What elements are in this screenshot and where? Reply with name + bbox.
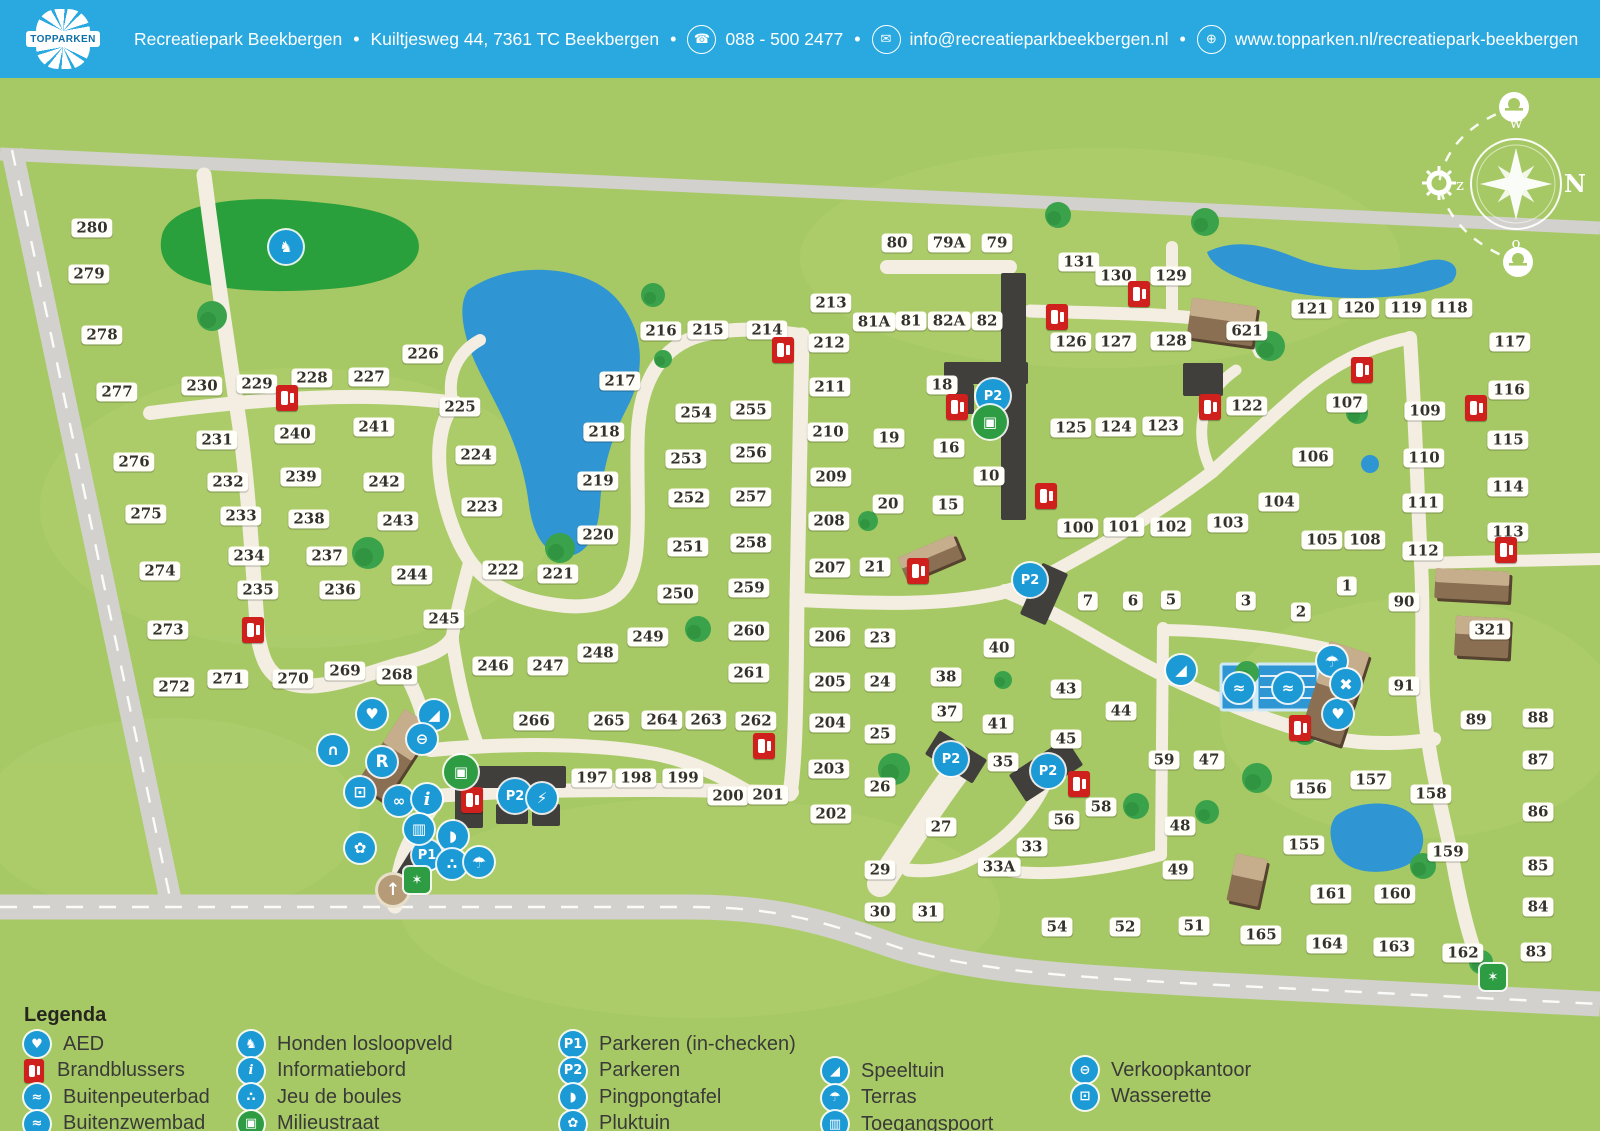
legend-item-p1: P1Parkeren (in-checken) xyxy=(560,1032,796,1056)
plot-label-80: 80 xyxy=(882,234,913,253)
plot-label-5: 5 xyxy=(1161,591,1181,610)
plot-label-227: 227 xyxy=(348,368,389,387)
plot-label-220: 220 xyxy=(577,526,618,545)
plot-label-81A: 81A xyxy=(853,313,896,332)
legend-label: Buitenzwembad xyxy=(63,1112,205,1131)
fire-extinguisher-icon xyxy=(1495,537,1517,563)
plot-label-202: 202 xyxy=(810,805,851,824)
plot-label-87: 87 xyxy=(1523,751,1554,770)
legend-label: Buitenpeuterbad xyxy=(63,1086,210,1109)
plot-label-52: 52 xyxy=(1110,918,1141,937)
plot-label-257: 257 xyxy=(730,488,771,507)
plot-label-157: 157 xyxy=(1350,771,1391,790)
plot-label-223: 223 xyxy=(461,498,502,517)
aed-icon: ♥ xyxy=(24,1031,50,1057)
legend-label: Terras xyxy=(861,1086,917,1109)
plot-label-81: 81 xyxy=(896,312,927,331)
plot-label-54: 54 xyxy=(1042,918,1073,937)
legend-label: Pingpongtafel xyxy=(599,1086,721,1109)
plot-label-162: 162 xyxy=(1442,944,1483,963)
plot-label-258: 258 xyxy=(730,534,771,553)
park-map: w N z o xyxy=(0,78,1600,1131)
plot-label-10: 10 xyxy=(974,467,1005,486)
plot-label-30: 30 xyxy=(865,903,896,922)
plot-label-205: 205 xyxy=(809,673,850,692)
entrance-gate-icon: ▥ xyxy=(404,814,434,844)
plot-label-164: 164 xyxy=(1306,935,1347,954)
legend-column-3: ◢Speeltuin☂Terras▥Toegangspoort∩Trampoli… xyxy=(822,1059,1001,1131)
dog-field-icon: ♞ xyxy=(269,230,303,264)
plot-label-274: 274 xyxy=(139,562,180,581)
legend-label: Wasserette xyxy=(1111,1085,1211,1108)
plot-label-279: 279 xyxy=(68,265,109,284)
plot-label-165: 165 xyxy=(1240,926,1281,945)
plot-label-277: 277 xyxy=(96,383,137,402)
plot-label-236: 236 xyxy=(319,581,360,600)
legend-item-zwembad: ≈Buitenzwembad xyxy=(24,1112,210,1131)
fire-extinguisher-icon xyxy=(1289,715,1311,741)
plot-label-84: 84 xyxy=(1523,898,1554,917)
legend-column-2: P1Parkeren (in-checken)P2Parkeren◗Pingpo… xyxy=(560,1032,796,1131)
fire-extinguisher-icon xyxy=(1128,281,1150,307)
plot-label-114: 114 xyxy=(1487,478,1528,497)
plot-label-41: 41 xyxy=(983,715,1014,734)
globe-icon: ⊕ xyxy=(1197,25,1226,54)
plot-label-204: 204 xyxy=(809,714,850,733)
plot-label-253: 253 xyxy=(665,450,706,469)
restaurant-icon: ✖ xyxy=(1331,669,1361,699)
sales-office-icon: ⊖ xyxy=(407,724,437,754)
legend-title: Legenda xyxy=(24,1004,106,1027)
topparken-logo: TOPPARKEN xyxy=(26,8,100,70)
park-map-page: TOPPARKEN Recreatiepark Beekbergen • Kui… xyxy=(0,0,1600,1131)
plot-label-115: 115 xyxy=(1487,431,1528,450)
plot-label-131: 131 xyxy=(1058,253,1099,272)
emergency-exit-icon: ✶ xyxy=(404,867,430,893)
legend-label: Pluktuin xyxy=(599,1112,670,1131)
plot-label-1: 1 xyxy=(1337,577,1357,596)
legend-label: Informatiebord xyxy=(277,1059,406,1082)
legend-label: Brandblussers xyxy=(57,1059,185,1082)
plot-label-58: 58 xyxy=(1086,798,1117,817)
fire-extinguisher-icon xyxy=(1351,357,1373,383)
plot-label-197: 197 xyxy=(571,769,612,788)
plot-label-43: 43 xyxy=(1051,680,1082,699)
separator: • xyxy=(854,29,860,50)
plot-label-82A: 82A xyxy=(928,312,971,331)
toddler-pool-icon: ≈ xyxy=(24,1084,50,1110)
plot-label-102: 102 xyxy=(1150,518,1191,537)
plot-label-106: 106 xyxy=(1292,448,1333,467)
legend-item-wasserette: ⊡Wasserette xyxy=(1072,1085,1251,1109)
legend-label: Parkeren xyxy=(599,1059,680,1082)
plot-label-256: 256 xyxy=(730,444,771,463)
plot-label-51: 51 xyxy=(1179,917,1210,936)
plot-label-110: 110 xyxy=(1403,449,1444,468)
plot-label-237: 237 xyxy=(306,547,347,566)
plot-label-212: 212 xyxy=(808,334,849,353)
plot-label-241: 241 xyxy=(353,418,394,437)
plot-label-240: 240 xyxy=(274,425,315,444)
fire-extinguisher-icon xyxy=(1199,394,1221,420)
plot-label-45: 45 xyxy=(1051,730,1082,749)
plot-label-276: 276 xyxy=(113,453,154,472)
park-address: Kuiltjesweg 44, 7361 TC Beekbergen xyxy=(371,29,660,50)
plot-label-226: 226 xyxy=(402,345,443,364)
plot-label-111: 111 xyxy=(1402,494,1443,513)
plot-label-215: 215 xyxy=(687,321,728,340)
aed-icon: ♥ xyxy=(1323,699,1353,729)
plot-label-268: 268 xyxy=(376,666,417,685)
legend-item-aed: ♥AED xyxy=(24,1032,210,1056)
plot-label-225: 225 xyxy=(439,398,480,417)
plot-label-232: 232 xyxy=(207,473,248,492)
legend-label: Honden losloopveld xyxy=(277,1033,453,1056)
plot-label-103: 103 xyxy=(1207,514,1248,533)
plot-label-59: 59 xyxy=(1149,751,1180,770)
plot-label-231: 231 xyxy=(196,431,237,450)
plot-label-88: 88 xyxy=(1523,709,1554,728)
plot-label-247: 247 xyxy=(527,657,568,676)
fire-extinguisher-icon xyxy=(1046,304,1068,330)
plot-label-250: 250 xyxy=(657,585,698,604)
playground-icon: ◢ xyxy=(1166,655,1196,685)
bike-rental-icon: ∞ xyxy=(384,786,414,816)
legend-item-brand: Brandblussers xyxy=(24,1059,210,1083)
plot-label-261: 261 xyxy=(728,664,769,683)
waste-station-icon: ▣ xyxy=(238,1111,264,1131)
emergency-exit-icon: ✶ xyxy=(1480,964,1506,990)
plot-label-278: 278 xyxy=(81,326,122,345)
website-url[interactable]: www.topparken.nl/recreatiepark-beekberge… xyxy=(1235,29,1578,50)
launderette-icon: ⊡ xyxy=(345,777,375,807)
plot-label-124: 124 xyxy=(1095,418,1136,437)
plot-label-90: 90 xyxy=(1389,593,1420,612)
legend-item-pingpong: ◗Pingpongtafel xyxy=(560,1085,796,1109)
legend-column-4: ⊖Verkoopkantoor⊡Wasserette xyxy=(1072,1058,1251,1111)
logo-brand-text: TOPPARKEN xyxy=(26,31,100,47)
plot-label-23: 23 xyxy=(865,629,896,648)
plot-label-120: 120 xyxy=(1338,299,1379,318)
legend-label: Verkoopkantoor xyxy=(1111,1059,1251,1082)
plot-label-201: 201 xyxy=(747,786,788,805)
plot-label-219: 219 xyxy=(577,472,618,491)
fire-extinguisher-icon xyxy=(276,385,298,411)
terrace-icon: ☂ xyxy=(822,1085,848,1111)
header-bar: TOPPARKEN Recreatiepark Beekbergen • Kui… xyxy=(0,0,1600,78)
plot-label-269: 269 xyxy=(324,662,365,681)
legend-item-toegang: ▥Toegangspoort xyxy=(822,1112,1001,1131)
plot-label-155: 155 xyxy=(1283,836,1324,855)
plot-label-222: 222 xyxy=(482,561,523,580)
plot-label-121: 121 xyxy=(1291,300,1332,319)
legend-item-peuterbad: ≈Buitenpeuterbad xyxy=(24,1085,210,1109)
plot-label-29: 29 xyxy=(865,861,896,880)
plot-label-33: 33 xyxy=(1017,838,1048,857)
legend-column-0: ♥AEDBrandblussers≈Buitenpeuterbad≈Buiten… xyxy=(24,1032,210,1131)
legend-label: Speeltuin xyxy=(861,1060,944,1083)
plot-label-108: 108 xyxy=(1344,531,1385,550)
legend-item-verkoop: ⊖Verkoopkantoor xyxy=(1072,1058,1251,1082)
plot-label-82: 82 xyxy=(972,312,1003,331)
fire-extinguisher-icon xyxy=(242,617,264,643)
plot-label-224: 224 xyxy=(455,446,496,465)
plot-label-160: 160 xyxy=(1374,885,1415,904)
legend-item-jeu: ∴Jeu de boules xyxy=(238,1085,556,1109)
plot-label-239: 239 xyxy=(280,468,321,487)
launderette-icon: ⊡ xyxy=(1072,1084,1098,1110)
plot-label-117: 117 xyxy=(1489,333,1530,352)
plot-label-217: 217 xyxy=(599,372,640,391)
parking-p1-icon: P1 xyxy=(560,1031,586,1057)
plot-label-271: 271 xyxy=(207,670,248,689)
plot-label-213: 213 xyxy=(810,294,851,313)
plot-label-208: 208 xyxy=(808,512,849,531)
plot-label-206: 206 xyxy=(809,628,850,647)
plot-label-266: 266 xyxy=(513,712,554,731)
waste-station-icon: ▣ xyxy=(973,405,1007,439)
plot-label-25: 25 xyxy=(865,725,896,744)
parking-p2-icon: P2 xyxy=(934,742,968,776)
plot-label-156: 156 xyxy=(1290,780,1331,799)
plot-label-44: 44 xyxy=(1106,702,1137,721)
plot-label-200: 200 xyxy=(707,787,748,806)
legend-item-speeltuin: ◢Speeltuin xyxy=(822,1059,1001,1083)
plot-label-161: 161 xyxy=(1310,885,1351,904)
plot-label-263: 263 xyxy=(685,711,726,730)
fire-extinguisher-icon xyxy=(461,787,483,813)
plot-label-275: 275 xyxy=(125,505,166,524)
phone-number[interactable]: 088 - 500 2477 xyxy=(725,29,843,50)
parking-p2-icon: P2 xyxy=(1013,563,1047,597)
plot-label-79A: 79A xyxy=(928,234,971,253)
logo-fan-bottom-icon xyxy=(36,47,90,69)
plot-label-216: 216 xyxy=(640,322,681,341)
plot-label-254: 254 xyxy=(675,404,716,423)
terrace-icon: ☂ xyxy=(464,847,494,877)
plot-label-15: 15 xyxy=(933,496,964,515)
fire-extinguisher-icon xyxy=(1465,395,1487,421)
legend-item-dog: ♞Honden losloopveld xyxy=(238,1032,556,1056)
toddler-pool-icon: ≈ xyxy=(1224,673,1254,703)
legend-label: Parkeren (in-checken) xyxy=(599,1033,796,1056)
facility-icons: ♞P2P2P2P2P2P1▣▣♥♥◢◢⊖∩R⊡∞i▥◗✿∴☂☂⚡✖≈≈↑✶✶ xyxy=(0,78,1600,1131)
plot-label-252: 252 xyxy=(668,489,709,508)
information-board-icon: i xyxy=(412,784,442,814)
plot-label-260: 260 xyxy=(728,622,769,641)
plot-label-2: 2 xyxy=(1291,603,1311,622)
plot-label-31: 31 xyxy=(913,903,944,922)
plot-label-40: 40 xyxy=(984,639,1015,658)
legend-column-1: ♞Honden losloopveldiInformatiebord∴Jeu d… xyxy=(238,1032,556,1131)
plot-label-101: 101 xyxy=(1103,518,1144,537)
plot-label-210: 210 xyxy=(807,423,848,442)
reception-icon: R xyxy=(367,747,397,777)
plot-label-38: 38 xyxy=(931,668,962,687)
plot-label-112: 112 xyxy=(1402,542,1443,561)
plot-label-251: 251 xyxy=(667,538,708,557)
plot-label-127: 127 xyxy=(1095,333,1136,352)
plot-label-16: 16 xyxy=(934,439,965,458)
plot-label-198: 198 xyxy=(615,769,656,788)
plot-label-245: 245 xyxy=(423,610,464,629)
plot-label-238: 238 xyxy=(288,510,329,529)
plot-label-91: 91 xyxy=(1389,677,1420,696)
plot-label-33A: 33A xyxy=(978,858,1021,877)
plot-label-116: 116 xyxy=(1488,381,1529,400)
plot-label-85: 85 xyxy=(1523,857,1554,876)
header-contact-line: Recreatiepark Beekbergen • Kuiltjesweg 4… xyxy=(134,25,1578,54)
information-board-icon: i xyxy=(238,1058,264,1084)
plot-label-203: 203 xyxy=(808,760,849,779)
legend-item-p2: P2Parkeren xyxy=(560,1059,796,1083)
plot-label-48: 48 xyxy=(1165,817,1196,836)
plot-label-233: 233 xyxy=(220,507,261,526)
plot-label-105: 105 xyxy=(1301,531,1342,550)
separator: • xyxy=(670,29,676,50)
plot-label-234: 234 xyxy=(228,547,269,566)
plot-label-255: 255 xyxy=(730,401,771,420)
plot-label-7: 7 xyxy=(1078,592,1098,611)
plot-label-56: 56 xyxy=(1049,811,1080,830)
plot-label-242: 242 xyxy=(363,473,404,492)
trampoline-icon: ∩ xyxy=(318,735,348,765)
fire-extinguisher-icon xyxy=(1035,483,1057,509)
legend-item-terras: ☂Terras xyxy=(822,1086,1001,1110)
aed-icon: ♥ xyxy=(357,699,387,729)
fire-extinguisher-icon xyxy=(753,733,775,759)
outdoor-pool-icon: ≈ xyxy=(1273,673,1303,703)
plot-label-249: 249 xyxy=(627,628,668,647)
plot-label-118: 118 xyxy=(1431,299,1472,318)
plot-label-21: 21 xyxy=(860,558,891,577)
legend-label: Toegangspoort xyxy=(861,1113,993,1131)
playground-icon: ◢ xyxy=(822,1058,848,1084)
plot-label-128: 128 xyxy=(1150,332,1191,351)
plot-label-273: 273 xyxy=(147,621,188,640)
plot-label-47: 47 xyxy=(1194,751,1225,770)
plot-label-262: 262 xyxy=(735,712,776,731)
jeu-de-boules-icon: ∴ xyxy=(238,1084,264,1110)
park-name: Recreatiepark Beekbergen xyxy=(134,29,342,50)
picking-garden-icon: ✿ xyxy=(345,833,375,863)
plot-label-125: 125 xyxy=(1050,419,1091,438)
plot-label-126: 126 xyxy=(1050,333,1091,352)
plot-label-207: 207 xyxy=(809,559,850,578)
plot-label-321: 321 xyxy=(1469,621,1510,640)
plot-label-163: 163 xyxy=(1373,938,1414,957)
ev-charging-icon: ⚡ xyxy=(527,783,557,813)
ping-pong-icon: ◗ xyxy=(560,1084,586,1110)
plot-label-259: 259 xyxy=(728,579,769,598)
fire-extinguisher-icon xyxy=(907,558,929,584)
plot-label-158: 158 xyxy=(1410,785,1451,804)
plot-label-35: 35 xyxy=(988,753,1019,772)
plot-label-209: 209 xyxy=(810,468,851,487)
fire-extinguisher-icon xyxy=(772,337,794,363)
plot-label-107: 107 xyxy=(1326,394,1367,413)
fire-extinguisher-icon xyxy=(946,394,968,420)
plot-label-26: 26 xyxy=(865,778,896,797)
email-address[interactable]: info@recreatieparkbeekbergen.nl xyxy=(910,29,1169,50)
plot-label-122: 122 xyxy=(1226,397,1267,416)
fire-extinguisher-icon xyxy=(24,1059,44,1083)
plot-label-24: 24 xyxy=(865,673,896,692)
email-icon: ✉ xyxy=(872,25,901,54)
plot-label-280: 280 xyxy=(71,219,112,238)
legend-item-milieu: ▣Milieustraat xyxy=(238,1112,556,1131)
plot-label-20: 20 xyxy=(873,495,904,514)
plot-label-159: 159 xyxy=(1427,843,1468,862)
plot-label-49: 49 xyxy=(1163,861,1194,880)
plot-label-86: 86 xyxy=(1523,803,1554,822)
dog-field-icon: ♞ xyxy=(238,1031,264,1057)
plot-label-243: 243 xyxy=(377,512,418,531)
plot-label-199: 199 xyxy=(662,769,703,788)
plot-label-264: 264 xyxy=(641,711,682,730)
plot-label-19: 19 xyxy=(874,429,905,448)
plot-label-100: 100 xyxy=(1057,519,1098,538)
plot-label-27: 27 xyxy=(926,818,957,837)
legend-label: Milieustraat xyxy=(277,1112,379,1131)
ping-pong-icon: ◗ xyxy=(438,821,468,851)
plot-label-83: 83 xyxy=(1521,943,1552,962)
plot-label-129: 129 xyxy=(1150,267,1191,286)
plot-label-37: 37 xyxy=(932,703,963,722)
plot-label-6: 6 xyxy=(1123,592,1143,611)
fire-extinguisher-icon xyxy=(1068,771,1090,797)
plot-label-119: 119 xyxy=(1385,299,1426,318)
picking-garden-icon: ✿ xyxy=(560,1111,586,1131)
plot-label-123: 123 xyxy=(1142,417,1183,436)
plot-label-104: 104 xyxy=(1258,493,1299,512)
parking-p2-icon: P2 xyxy=(1031,754,1065,788)
jeu-de-boules-icon: ∴ xyxy=(437,849,467,879)
separator: • xyxy=(1180,29,1186,50)
plot-label-246: 246 xyxy=(472,657,513,676)
plot-label-228: 228 xyxy=(291,369,332,388)
plot-label-229: 229 xyxy=(236,375,277,394)
phone-icon: ☎ xyxy=(687,25,716,54)
plot-label-89: 89 xyxy=(1461,711,1492,730)
sales-office-icon: ⊖ xyxy=(1072,1057,1098,1083)
plot-label-265: 265 xyxy=(588,712,629,731)
plot-label-272: 272 xyxy=(153,678,194,697)
plot-label-218: 218 xyxy=(583,423,624,442)
logo-fan-top-icon xyxy=(36,9,90,31)
plot-label-109: 109 xyxy=(1404,402,1445,421)
legend-item-info: iInformatiebord xyxy=(238,1059,556,1083)
outdoor-pool-icon: ≈ xyxy=(24,1111,50,1131)
plot-label-235: 235 xyxy=(237,581,278,600)
plot-label-18: 18 xyxy=(927,376,958,395)
plot-label-221: 221 xyxy=(537,565,578,584)
parking-p2-icon: P2 xyxy=(560,1058,586,1084)
legend-item-pluktuin: ✿Pluktuin xyxy=(560,1112,796,1131)
plot-label-79: 79 xyxy=(982,234,1013,253)
plot-label-248: 248 xyxy=(577,644,618,663)
plot-label-244: 244 xyxy=(391,566,432,585)
plot-label-621: 621 xyxy=(1226,322,1267,341)
legend-label: Jeu de boules xyxy=(277,1086,402,1109)
plot-label-230: 230 xyxy=(181,377,222,396)
legend-label: AED xyxy=(63,1033,104,1056)
separator: • xyxy=(353,29,359,50)
plot-label-3: 3 xyxy=(1236,592,1256,611)
entrance-gate-icon: ▥ xyxy=(822,1111,848,1131)
waste-station-icon: ▣ xyxy=(444,755,478,789)
plot-label-270: 270 xyxy=(272,670,313,689)
